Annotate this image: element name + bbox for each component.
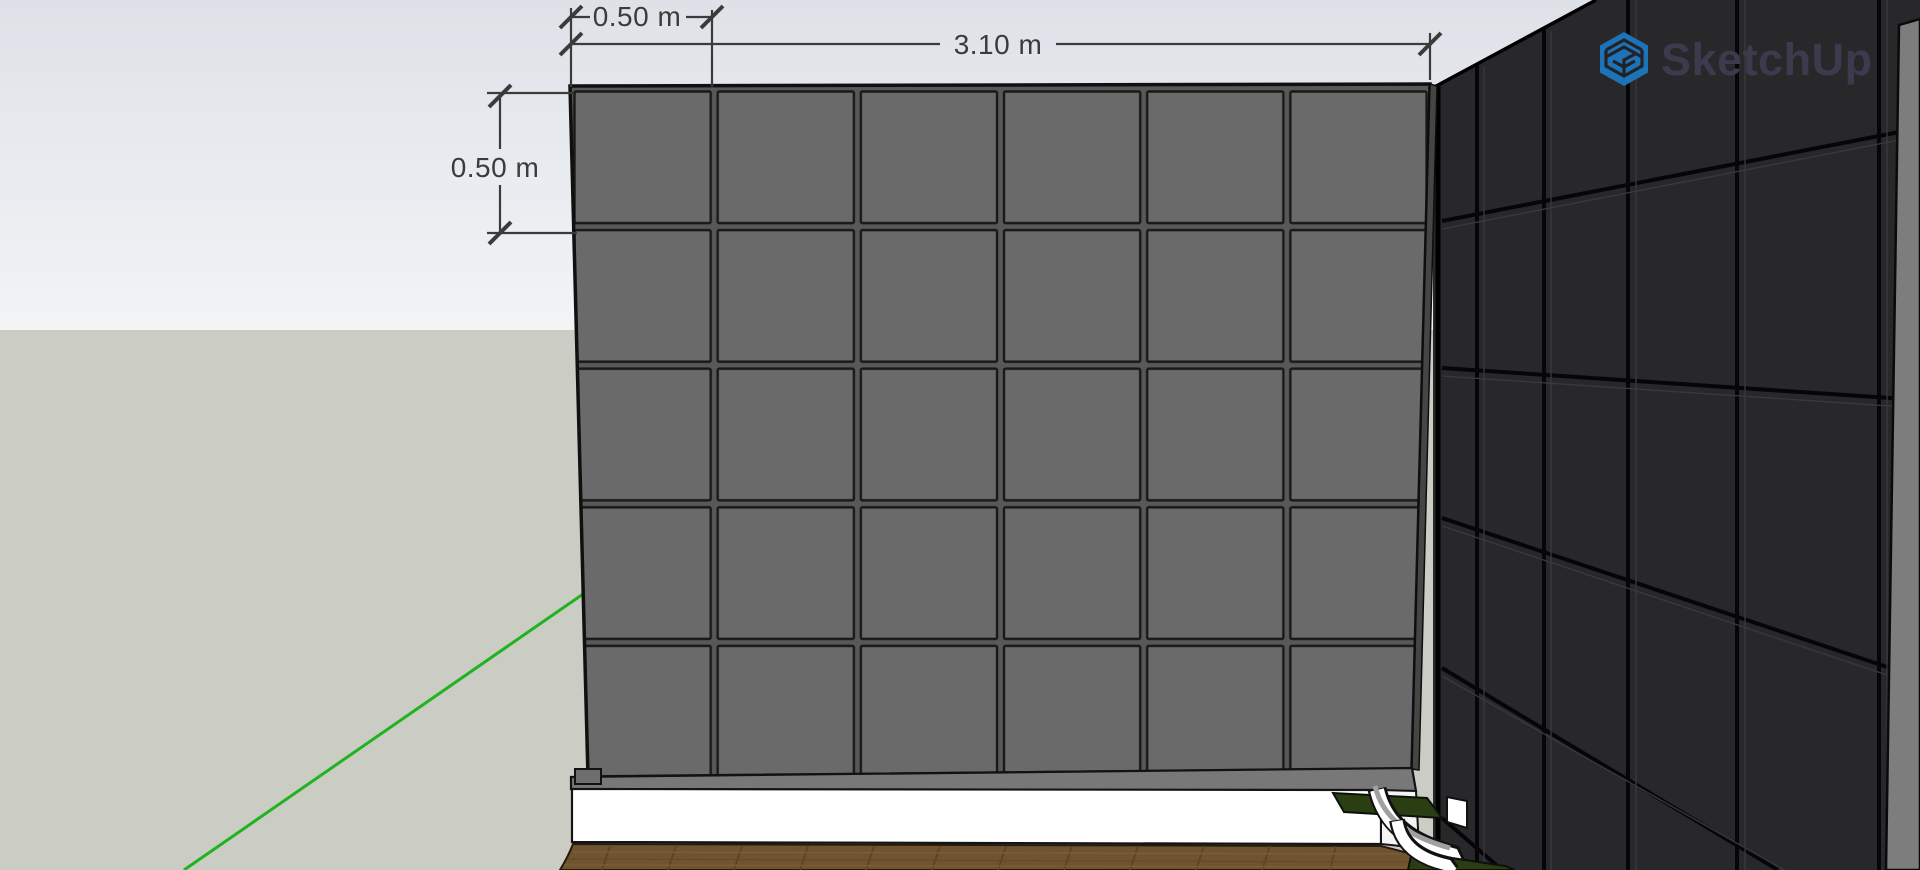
plinth-ledge-step — [575, 769, 601, 784]
sketchup-viewport[interactable]: 0.50 m 3.10 m 0.50 m SketchUp — [0, 0, 1920, 870]
side-tiled-wall[interactable] — [1433, 0, 1920, 870]
plinth-baseboard[interactable] — [571, 768, 1419, 848]
plinth-front-face — [572, 789, 1381, 844]
sketchup-cube-icon — [1597, 30, 1651, 88]
wood-floor[interactable] — [560, 844, 1432, 870]
model-scene[interactable] — [0, 0, 1920, 870]
dim-tile-width-label[interactable]: 0.50 m — [593, 3, 682, 31]
sketchup-watermark-text: SketchUp — [1661, 37, 1873, 82]
tiled-feature-wall[interactable] — [570, 84, 1437, 777]
dim-tile-height-label[interactable]: 0.50 m — [451, 154, 540, 182]
planter-white-notch — [1447, 797, 1467, 828]
dim-wall-width-label[interactable]: 3.10 m — [954, 31, 1043, 59]
